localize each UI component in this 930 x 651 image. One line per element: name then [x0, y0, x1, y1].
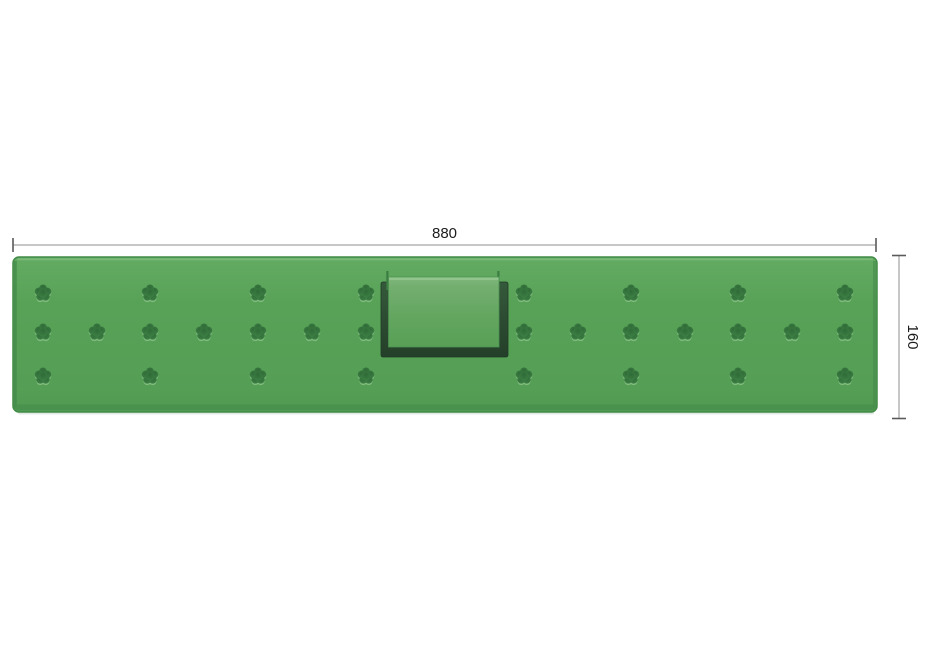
- width-dimension-label: 880: [432, 225, 457, 242]
- panel-right-shade: [873, 261, 876, 408]
- height-dimension-label: 160: [904, 324, 921, 349]
- panel-top-highlight: [17, 258, 873, 260]
- width-dimension: 880: [13, 225, 876, 252]
- module-cover-plate: [389, 277, 500, 347]
- panel-left-shade: [14, 261, 17, 408]
- panel-technical-drawing: 880: [0, 0, 930, 651]
- module-plate-highlight: [389, 277, 499, 280]
- center-module: [381, 271, 508, 357]
- height-dimension: 160: [892, 256, 921, 419]
- panel-bottom-shade: [15, 405, 875, 411]
- drawing-canvas: 880: [0, 0, 930, 651]
